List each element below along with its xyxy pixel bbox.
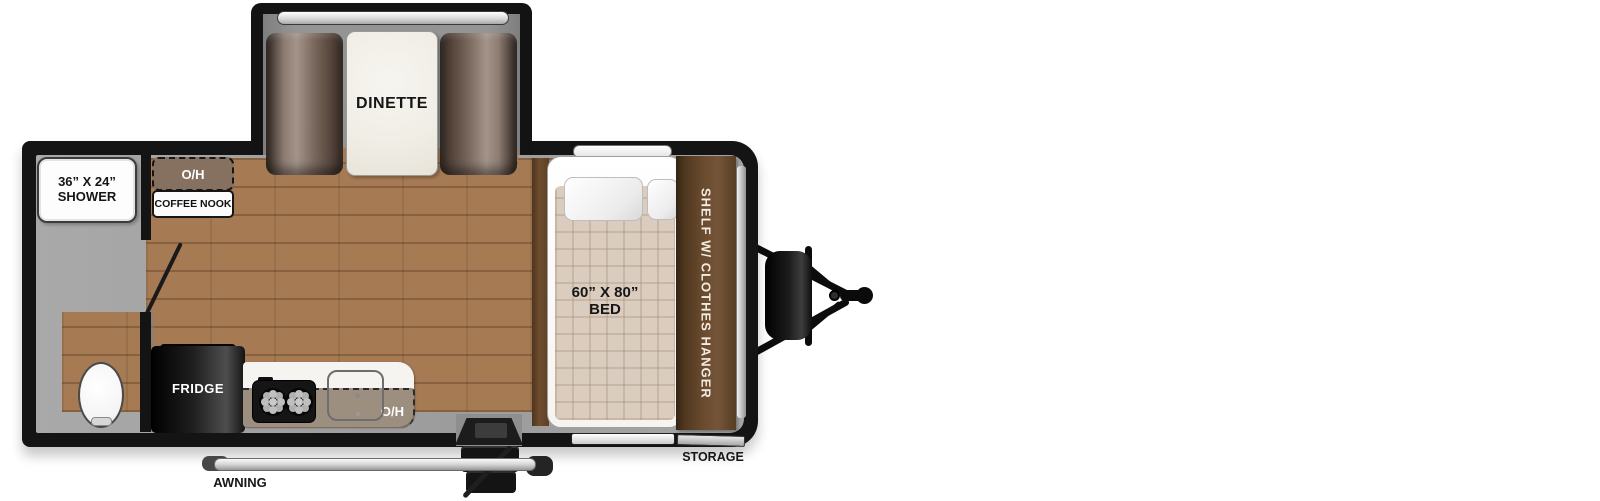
coffee-nook-label: COFFEE NOOK bbox=[154, 198, 231, 210]
burner-icon bbox=[285, 388, 313, 416]
shower-label: 36” X 24” SHOWER bbox=[58, 175, 117, 204]
coffee-nook: COFFEE NOOK bbox=[152, 190, 234, 218]
dinette-bench-right bbox=[440, 33, 517, 175]
slideout-window bbox=[277, 11, 509, 25]
coffee-nook-oh-cabinet: O/H bbox=[152, 157, 234, 191]
bathroom-wall-top bbox=[141, 148, 151, 240]
sink-faucet-icon bbox=[356, 412, 360, 416]
sink-drain-icon bbox=[355, 393, 360, 398]
shower: 36” X 24” SHOWER bbox=[37, 157, 137, 223]
burner-icon bbox=[259, 388, 287, 416]
awning-label: AWNING bbox=[200, 476, 280, 491]
storage-label: STORAGE bbox=[673, 450, 753, 464]
storage-access-door-silver bbox=[677, 434, 745, 447]
stove-cooktop bbox=[252, 380, 316, 423]
storage-access-door bbox=[571, 433, 675, 445]
front-wall-storage-door bbox=[737, 166, 746, 418]
kitchen-oh-label: O/H bbox=[381, 404, 404, 419]
dinette-bench-left bbox=[266, 33, 343, 175]
toilet-base bbox=[91, 417, 112, 426]
clothes-shelf: SHELF W/ CLOTHES HANGER bbox=[676, 156, 736, 430]
bed-pillow-left bbox=[564, 177, 643, 221]
bathroom-wall-bottom bbox=[140, 312, 151, 432]
kitchen-sink bbox=[327, 370, 384, 421]
hitch-coupler-ball-icon bbox=[856, 287, 873, 304]
entry-step-platform-tread bbox=[475, 423, 507, 438]
travel-trailer-floorplan: DINETTE 36” X 24” SHOWER O/H COFFEE NOOK… bbox=[0, 0, 1600, 501]
clothes-shelf-label: SHELF W/ CLOTHES HANGER bbox=[676, 156, 736, 430]
coffee-nook-oh-label: O/H bbox=[181, 167, 204, 182]
fridge-label: FRIDGE bbox=[172, 382, 224, 397]
dinette-label: DINETTE bbox=[356, 95, 428, 113]
propane-tank bbox=[765, 251, 812, 340]
bed-pillow-right bbox=[647, 179, 679, 220]
hitch-jack-bolt-icon bbox=[829, 290, 840, 301]
awning-bar bbox=[214, 458, 536, 471]
fridge: FRIDGE bbox=[151, 346, 245, 433]
bed-label: 60” X 80” BED bbox=[545, 285, 665, 319]
dinette-table: DINETTE bbox=[346, 31, 438, 176]
